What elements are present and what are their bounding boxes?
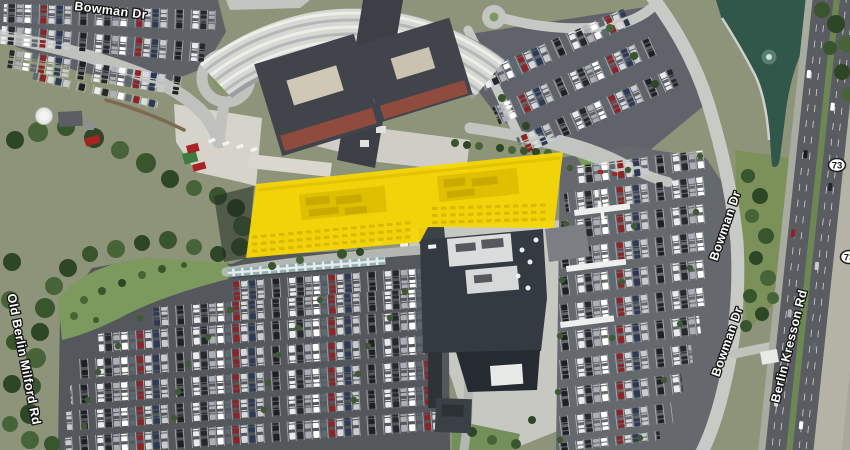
- route-73-shield-2: 73: [841, 251, 850, 264]
- parking-island: [175, 389, 181, 395]
- parking-island: [265, 380, 271, 386]
- parking-island: [81, 423, 87, 429]
- parking-island: [295, 325, 301, 331]
- parking-island: [567, 165, 573, 171]
- tree: [3, 375, 21, 393]
- tree: [834, 64, 850, 80]
- tree: [21, 431, 39, 449]
- vehicle: [806, 70, 811, 78]
- parking-island: [557, 437, 563, 443]
- parking-island: [661, 377, 667, 383]
- tree: [522, 122, 530, 130]
- tree: [823, 41, 837, 55]
- tree: [2, 416, 18, 432]
- parking-island: [351, 397, 357, 403]
- parking-island: [637, 435, 643, 441]
- parking-island: [275, 352, 281, 358]
- vehicle: [812, 342, 817, 350]
- parking-island: [95, 369, 101, 375]
- tree: [70, 312, 78, 320]
- parking-island: [387, 315, 393, 321]
- parking-island: [619, 279, 625, 285]
- parking-island: [261, 407, 267, 413]
- parking-island: [93, 317, 99, 323]
- tree: [511, 439, 521, 449]
- tree: [463, 141, 471, 149]
- tree: [475, 142, 483, 150]
- tree: [59, 259, 77, 277]
- tree: [82, 246, 98, 262]
- tree: [186, 239, 202, 255]
- tree: [498, 94, 506, 102]
- tree: [827, 15, 845, 33]
- tree: [3, 253, 21, 271]
- tree: [111, 141, 129, 159]
- tree: [158, 265, 166, 273]
- tree: [745, 209, 759, 223]
- tree: [159, 231, 177, 249]
- tree: [760, 270, 776, 286]
- tree: [98, 287, 106, 295]
- tree: [749, 251, 763, 265]
- parking-island: [317, 297, 323, 303]
- parking-island: [85, 397, 91, 403]
- tree: [138, 271, 146, 279]
- route-shield-text: 73: [844, 253, 850, 264]
- parking-island: [555, 389, 561, 395]
- tree: [487, 435, 497, 445]
- parking-island: [181, 262, 187, 268]
- tree: [752, 188, 768, 204]
- tree: [80, 296, 88, 304]
- tree: [118, 279, 126, 287]
- parking-island: [365, 343, 371, 349]
- vehicle: [814, 262, 819, 270]
- parking-island: [115, 343, 121, 349]
- tree: [755, 307, 769, 321]
- vehicle: [791, 229, 796, 237]
- tree: [741, 169, 755, 183]
- tree: [268, 262, 276, 270]
- parking-island: [171, 415, 177, 421]
- parking-island: [693, 209, 699, 215]
- tree: [134, 235, 150, 251]
- tree: [814, 2, 830, 18]
- tree: [6, 131, 24, 149]
- tree: [31, 323, 49, 341]
- tree: [508, 146, 516, 154]
- parking-island: [185, 361, 191, 367]
- tree: [107, 240, 125, 258]
- parking-island: [355, 371, 361, 377]
- parking-island: [625, 167, 631, 173]
- vehicle: [828, 183, 833, 191]
- tree: [606, 24, 614, 32]
- tree: [161, 170, 179, 188]
- tree: [630, 52, 638, 60]
- tree: [45, 277, 63, 295]
- route-73-shield: 73: [829, 159, 846, 172]
- tree: [496, 144, 504, 152]
- satellite-imagery: Bowman Dr Bowman Dr Bowman Dr Berlin Kre…: [0, 0, 850, 450]
- parking-island: [137, 315, 143, 321]
- route-shield-text: 73: [832, 161, 843, 172]
- parking-island: [559, 277, 565, 283]
- parking-island: [697, 153, 703, 159]
- vehicle: [803, 150, 808, 158]
- parking-island: [205, 334, 211, 340]
- parking-island: [227, 307, 233, 313]
- parking-island: [631, 223, 637, 229]
- tree: [758, 228, 774, 244]
- aerial-map-view[interactable]: Bowman Dr Bowman Dr Bowman Dr Berlin Kre…: [0, 0, 850, 450]
- fountain: [766, 54, 772, 60]
- tree: [337, 249, 347, 259]
- parking-island: [677, 321, 683, 327]
- tree: [35, 298, 55, 318]
- parking-island: [402, 289, 408, 295]
- tree: [528, 416, 536, 424]
- parking-island: [557, 333, 563, 339]
- vehicle: [830, 103, 835, 111]
- tree: [186, 180, 202, 196]
- parking-island: [687, 265, 693, 271]
- tree: [740, 320, 752, 332]
- tree: [28, 122, 48, 142]
- tree: [356, 248, 364, 256]
- vehicle: [799, 421, 804, 429]
- tree: [520, 147, 528, 155]
- cul-de-sac-island: [490, 13, 499, 22]
- tree: [651, 80, 659, 88]
- tree: [451, 139, 459, 147]
- tree: [296, 256, 304, 264]
- tree: [136, 153, 156, 173]
- tree: [743, 289, 757, 303]
- parking-island: [609, 335, 615, 341]
- tree: [767, 292, 779, 304]
